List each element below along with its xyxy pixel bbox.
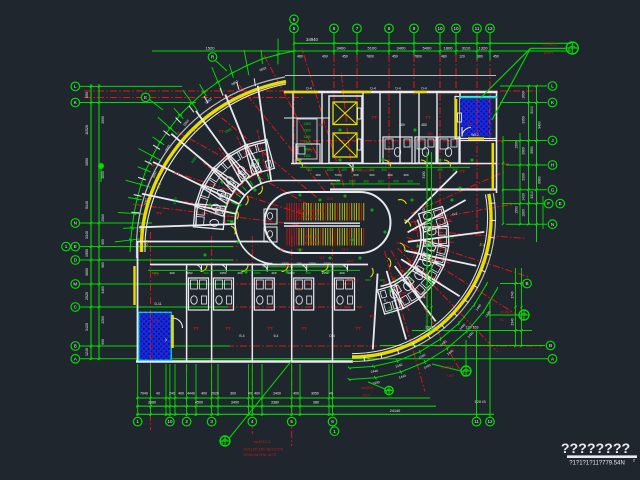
svg-text:??: ?? (174, 171, 180, 176)
svg-text:??: ?? (459, 169, 465, 174)
svg-text:1880: 1880 (522, 209, 526, 217)
svg-text:B: B (549, 343, 552, 348)
svg-text:1520: 1520 (348, 179, 355, 183)
svg-text:300: 300 (452, 168, 458, 172)
svg-text:5950: 5950 (530, 146, 534, 154)
svg-text:400: 400 (254, 392, 260, 396)
svg-text:xx.I517: xx.I517 (500, 310, 512, 314)
svg-text:U2: U2 (280, 248, 285, 252)
svg-text:1650: 1650 (85, 158, 89, 166)
svg-text:?1: ?1 (464, 107, 468, 111)
svg-text:380: 380 (477, 55, 483, 59)
svg-text:G: G (551, 187, 555, 192)
svg-text:1?1?: 1?1? (362, 394, 370, 398)
svg-text:D-4: D-4 (421, 86, 426, 90)
svg-text:nn.J412: nn.J412 (543, 43, 557, 47)
svg-text:3380: 3380 (148, 401, 156, 405)
svg-text:D-4: D-4 (306, 86, 311, 90)
svg-text:Fo1d1C?: Fo1d1C? (345, 279, 359, 283)
svg-text:2390: 2390 (522, 173, 526, 181)
svg-text:6: 6 (333, 26, 336, 31)
svg-text:480: 480 (421, 123, 427, 127)
svg-text:240: 240 (169, 392, 175, 396)
svg-text:??: ?? (153, 272, 159, 277)
svg-text:??: ?? (225, 326, 231, 331)
svg-text:150: 150 (393, 278, 398, 282)
svg-text:2400: 2400 (273, 392, 281, 396)
svg-text:400: 400 (178, 392, 184, 396)
svg-text:7040: 7040 (140, 392, 148, 396)
svg-text:300: 300 (403, 173, 408, 177)
svg-text:N: N (551, 222, 554, 227)
svg-text:1817: 1817 (377, 179, 384, 183)
svg-text:1350: 1350 (303, 141, 311, 145)
svg-text:nb.J517: nb.J517 (441, 366, 454, 370)
svg-text:??: ?? (371, 115, 377, 120)
svg-text:400: 400 (305, 271, 310, 275)
svg-text:3340: 3340 (85, 231, 89, 239)
svg-text:1950: 1950 (326, 168, 333, 172)
svg-text:2080: 2080 (101, 214, 105, 222)
svg-text:N87: N87 (319, 123, 325, 127)
svg-text:400: 400 (437, 168, 443, 172)
svg-text:3400: 3400 (231, 401, 239, 405)
svg-text:6: 6 (293, 17, 296, 22)
svg-text:400: 400 (393, 179, 399, 183)
svg-text:3400: 3400 (337, 45, 347, 50)
svg-text:480: 480 (427, 132, 433, 136)
svg-text:300*10?=7: 300*10?=7 (304, 241, 321, 245)
svg-text:1350: 1350 (303, 122, 311, 126)
svg-text:8: 8 (388, 26, 391, 31)
svg-text:??: ?? (369, 314, 375, 319)
svg-text:34940: 34940 (306, 37, 318, 42)
svg-text:480: 480 (399, 123, 405, 127)
svg-text:1a: 1a (396, 241, 400, 245)
svg-text:24140: 24140 (390, 409, 401, 413)
svg-text:40: 40 (156, 392, 160, 396)
svg-text:650: 650 (85, 92, 89, 98)
svg-text:B2: B2 (308, 168, 312, 172)
svg-text:400: 400 (237, 271, 242, 275)
svg-text:960: 960 (101, 262, 105, 268)
svg-text:a?b?r: a?b?r (544, 51, 554, 55)
svg-text:590: 590 (101, 239, 105, 245)
svg-text:450: 450 (392, 55, 398, 59)
svg-text:400: 400 (271, 271, 276, 275)
svg-text:7800: 7800 (414, 55, 422, 59)
svg-text:400: 400 (201, 392, 207, 396)
svg-text:120: 120 (459, 55, 465, 59)
svg-text:3310: 3310 (530, 191, 534, 199)
svg-text:??: ?? (267, 326, 273, 331)
svg-text:6-4: 6-4 (274, 334, 279, 338)
svg-text:3460: 3460 (101, 286, 105, 294)
svg-text:D-9: D-9 (145, 240, 149, 246)
svg-text:300: 300 (363, 179, 369, 183)
svg-text:400: 400 (293, 392, 299, 396)
svg-text:480: 480 (387, 173, 392, 177)
svg-text:500: 500 (407, 179, 413, 183)
svg-text:1: 1 (333, 429, 336, 434)
svg-text:1a-4: 1a-4 (342, 248, 349, 252)
svg-text:2020: 2020 (211, 392, 219, 396)
svg-text:1350: 1350 (303, 148, 311, 152)
svg-text:3130: 3130 (422, 171, 426, 178)
svg-text:2280: 2280 (101, 316, 105, 324)
svg-text:L: L (74, 84, 77, 89)
svg-text:450: 450 (342, 55, 348, 59)
svg-text:680: 680 (365, 278, 370, 282)
svg-text:7200: 7200 (335, 173, 342, 177)
svg-text:1740: 1740 (511, 291, 515, 298)
svg-text:E: E (144, 95, 147, 100)
svg-text:D-4: D-4 (370, 86, 375, 90)
svg-text:nnJ212-1: nnJ212-1 (254, 439, 271, 444)
svg-text:B: B (74, 344, 77, 349)
svg-text:1503: 1503 (515, 206, 519, 214)
svg-text:??: ?? (425, 115, 431, 120)
svg-text:7: 7 (356, 26, 359, 31)
svg-text:Fo1d1C?n: Fo1d1C?n (358, 169, 374, 173)
svg-text:120: 120 (379, 278, 384, 282)
svg-text:1a?: 1a? (247, 147, 253, 151)
svg-text:40: 40 (248, 392, 252, 396)
svg-text:1320: 1320 (479, 45, 489, 50)
svg-text:3800: 3800 (101, 171, 105, 179)
svg-text:1950: 1950 (254, 271, 261, 275)
svg-text:400: 400 (203, 271, 208, 275)
svg-text:500: 500 (353, 173, 358, 177)
svg-text:3420: 3420 (85, 323, 89, 331)
svg-text:W5-2: W5-2 (471, 133, 479, 137)
svg-text:?n?d?c?a?1?a, a1?C.: ?n?d?c?a?1?a, a1?C. (243, 453, 277, 457)
svg-text:400: 400 (339, 271, 344, 275)
svg-text:300: 300 (230, 392, 236, 396)
svg-text:? a0?: ? a0? (446, 374, 455, 378)
svg-text:7b: 7b (154, 318, 159, 323)
svg-text:??: ?? (445, 218, 451, 223)
svg-text:2340: 2340 (511, 318, 515, 325)
svg-text:1950: 1950 (186, 271, 193, 275)
svg-text:2860: 2860 (422, 251, 426, 258)
svg-text:12: 12 (487, 419, 493, 424)
svg-text:400: 400 (169, 271, 174, 275)
svg-text:12: 12 (487, 26, 493, 31)
svg-text:480: 480 (441, 55, 447, 59)
svg-text:1350: 1350 (303, 128, 311, 132)
svg-text:4500: 4500 (195, 401, 203, 405)
svg-text:380: 380 (313, 401, 319, 405)
svg-text:6960: 6960 (538, 176, 542, 184)
svg-text:2: 2 (185, 419, 188, 424)
svg-text:??: ?? (285, 264, 291, 269)
svg-text:1350: 1350 (303, 135, 311, 139)
svg-text:??: ?? (401, 291, 407, 296)
svg-text:?1?1?1?11?779.54N: ?1?1?1?11?779.54N (569, 461, 625, 467)
svg-text:1950: 1950 (85, 249, 89, 257)
svg-text:5000: 5000 (530, 106, 534, 114)
svg-text:900: 900 (101, 339, 105, 345)
svg-text:11: 11 (475, 26, 480, 31)
svg-text:2960: 2960 (522, 147, 526, 155)
svg-text:490: 490 (322, 55, 328, 59)
svg-text:1430: 1430 (522, 193, 526, 201)
svg-text:6: 6 (331, 419, 334, 424)
svg-text:3050: 3050 (311, 392, 319, 396)
svg-text:1: 1 (65, 244, 68, 249)
svg-text:1a-4: 1a-4 (347, 259, 354, 263)
svg-text:184 180T10=1800: 184 180T10=1800 (296, 209, 324, 213)
svg-text:D-11: D-11 (154, 302, 161, 306)
svg-text:10: 10 (167, 419, 173, 424)
svg-text:??: ?? (193, 326, 199, 331)
svg-text:11: 11 (474, 419, 479, 424)
svg-text:3350: 3350 (522, 116, 526, 124)
svg-text:4440: 4440 (187, 392, 195, 396)
svg-text:5: 5 (293, 26, 296, 31)
svg-text:900: 900 (369, 173, 374, 177)
svg-text:3400: 3400 (422, 208, 426, 215)
svg-text:3600: 3600 (85, 268, 89, 276)
svg-text:300*10?=07: 300*10?=07 (301, 215, 319, 219)
svg-text:N: N (74, 221, 77, 226)
svg-text:D-4: D-4 (395, 86, 400, 90)
svg-text:H: H (551, 163, 554, 168)
svg-text:5140: 5140 (85, 201, 89, 209)
svg-text:1: 1 (136, 419, 139, 424)
svg-text:B: B (525, 281, 528, 286)
svg-text:300: 300 (381, 168, 387, 172)
svg-text:1807 180: 1807 180 (305, 235, 319, 239)
svg-text:3380: 3380 (271, 401, 279, 405)
svg-text:n1.: n1. (500, 318, 505, 322)
svg-text:5: 5 (290, 419, 293, 424)
svg-text:E: E (74, 244, 77, 249)
svg-text:J: J (551, 138, 553, 143)
svg-text:480: 480 (297, 55, 303, 59)
svg-text:450: 450 (493, 55, 499, 59)
svg-text:??: ?? (429, 258, 435, 263)
svg-text:480: 480 (407, 278, 412, 282)
svg-text:40: 40 (329, 392, 333, 396)
svg-text:2020: 2020 (85, 292, 89, 300)
svg-text:2900: 2900 (101, 116, 105, 124)
svg-text:1950: 1950 (220, 271, 227, 275)
svg-text:7L: 7L (468, 122, 473, 127)
svg-text:D01: D01 (327, 197, 334, 201)
svg-text:3400: 3400 (397, 45, 407, 50)
svg-text:W: W (164, 338, 168, 341)
svg-text:1800: 1800 (444, 45, 454, 50)
svg-text:9: 9 (413, 26, 416, 31)
svg-text:11520: 11520 (85, 125, 89, 135)
svg-text:1350: 1350 (303, 154, 311, 158)
svg-text:??: ?? (301, 326, 307, 331)
svg-text:400: 400 (341, 168, 347, 172)
svg-text:D-3: D-3 (452, 212, 458, 217)
svg-text:1650: 1650 (522, 91, 526, 99)
svg-text:F: F (547, 201, 550, 206)
svg-text:4: 4 (251, 419, 254, 424)
svg-text:2-2: 2-2 (479, 243, 485, 248)
svg-text:??: ?? (156, 211, 162, 216)
svg-text:1500: 1500 (515, 141, 519, 149)
svg-text:480: 480 (315, 173, 320, 177)
svg-text:????????: ???????? (561, 441, 630, 457)
svg-text:D-4: D-4 (329, 334, 334, 338)
svg-text:1520: 1520 (206, 45, 216, 50)
svg-text:E: E (559, 201, 562, 206)
svg-text:5100: 5100 (368, 45, 378, 50)
svg-text:10: 10 (437, 26, 443, 31)
svg-text:nnJ215: nnJ215 (361, 386, 373, 390)
svg-text:M: M (73, 282, 77, 287)
svg-text:??: ?? (218, 129, 224, 134)
svg-text:B-4: B-4 (239, 334, 244, 338)
svg-text:?d?1Ltd? 150 ?an?1?2?d: ?d?1Ltd? 150 ?an?1?2?d (243, 448, 283, 452)
svg-text:7800: 7800 (366, 55, 374, 59)
svg-text:400: 400 (335, 179, 341, 183)
svg-text:10: 10 (453, 26, 459, 31)
svg-text:9430: 9430 (538, 121, 542, 129)
svg-text:1240: 1240 (85, 348, 89, 356)
svg-text:??: ?? (355, 326, 361, 331)
svg-text:U2: U2 (319, 255, 325, 260)
svg-text:1060: 1060 (422, 291, 426, 298)
svg-text:5400: 5400 (423, 45, 433, 50)
svg-text:3: 3 (210, 419, 213, 424)
svg-text:3110: 3110 (462, 45, 471, 50)
svg-text:D-9: D-9 (366, 354, 371, 360)
svg-text:L: L (551, 84, 554, 89)
